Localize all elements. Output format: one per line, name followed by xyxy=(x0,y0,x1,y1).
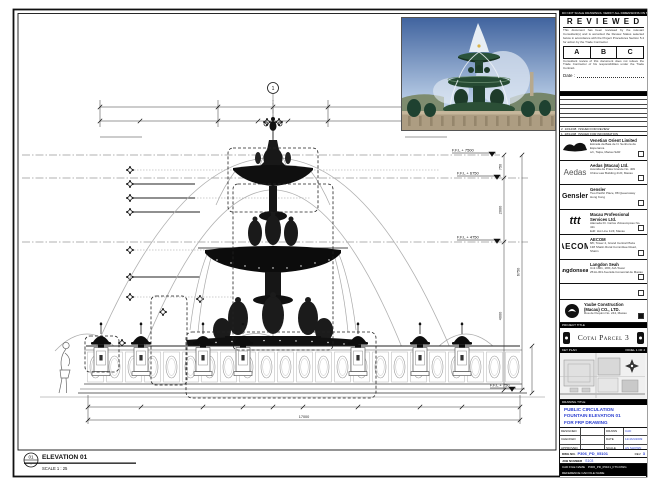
sheet-note: DO NOT SCALE DRAWINGS. VERIFY ALL DIMENS… xyxy=(562,12,647,15)
review-grade-row: A B C xyxy=(563,46,644,59)
consultant-checkbox[interactable] xyxy=(638,290,644,296)
consultant-box-aedas: Aedas Aedas (Macau) Ltd. Avenida da Prai… xyxy=(560,161,647,185)
cad-file-label: CAD FILE NAME xyxy=(562,466,585,469)
title-block-strip: DO NOT SCALE DRAWINGS. VERIFY ALL DIMENS… xyxy=(559,10,646,477)
grid-bubble: 1 xyxy=(268,83,279,94)
aedas-logo: Aedas xyxy=(562,163,588,181)
level-7500: F.F.L + 7500 xyxy=(452,148,475,153)
reference-photo xyxy=(401,17,556,131)
consultant-checkbox[interactable] xyxy=(638,200,644,206)
reviewed-title: R E V I E W E D xyxy=(563,17,644,28)
signature-grid: DESIGNED DRAWN CAD CHECKED - DATE 12/JAN… xyxy=(560,428,647,450)
project-title-label: PROJECT TITLE xyxy=(562,324,585,327)
consultant-address: Edif. Hot Line 11/F, Macau xyxy=(590,230,645,234)
reviewed-stamp: R E V I E W E D This document has been r… xyxy=(560,16,647,92)
key-plan-panel: PANEL 1 OF 4 xyxy=(625,349,645,352)
reference-cad-file-row: REFERENCE CAD FILE NAME xyxy=(560,470,647,476)
job-label: JOB NUMBER xyxy=(562,459,582,463)
consultant-checkbox[interactable] xyxy=(638,250,644,256)
date-field[interactable] xyxy=(577,72,644,78)
date-label2: DATE xyxy=(605,436,624,443)
project-title: Cotai Parcel 3 xyxy=(578,333,630,342)
consultant-box-empty xyxy=(560,284,647,300)
consultant-box-aecom: AECOM AECOM 8/F, Tower 2, Grand Central … xyxy=(560,235,647,260)
date-row: Date : xyxy=(563,72,644,78)
elevation-scale: SCALE 1 : 25 xyxy=(42,466,68,471)
rev-date: 10/12/08 xyxy=(565,127,577,131)
consultant-box-langdonseah: langdonseah Langdon Seah Unit 1801, 18/F… xyxy=(560,260,647,284)
checked-value: - xyxy=(581,436,605,443)
rev-desc: ISSUED FOR REVIEW xyxy=(578,127,609,131)
drawing-title-box: PUBLIC CIRCULATION FOUNTAIN ELEVATION 01… xyxy=(560,405,647,428)
dwg-number: P306_PD_05101 xyxy=(578,451,608,456)
grade-c-cell[interactable]: C xyxy=(617,47,643,58)
key-plan-label: KEY PLAN xyxy=(562,349,577,352)
consultant-checkbox[interactable] xyxy=(638,274,644,280)
dim-4000: 4000 xyxy=(499,312,503,320)
date-value: 12/JAN/2009 xyxy=(624,436,647,443)
consultant-box-venetian: Venetian Orient Limited Estrada da Baia … xyxy=(560,136,647,161)
venetian-lion-logo xyxy=(562,138,588,156)
ttt-logo: ttt xyxy=(562,212,588,230)
dim-750: 750 xyxy=(499,164,503,170)
dim-overall: 17000 xyxy=(299,415,310,419)
checked-label: CHECKED xyxy=(560,436,581,443)
reviewed-paragraph-1: This document has been reviewed by the r… xyxy=(563,29,644,45)
consultant-address: 251A-301 Avenida Comercial de Macau xyxy=(590,271,645,275)
langdonseah-logo: langdonseah xyxy=(562,262,588,280)
revision-table: 2 10/12/08 ISSUED FOR REVIEW 1 28/11/08 … xyxy=(560,96,647,136)
date-label: Date : xyxy=(563,73,575,78)
elevation-label: ELEVATION 01 xyxy=(42,454,88,461)
project-title-box: Cotai Parcel 3 xyxy=(560,328,647,348)
cad-file-value: P306_PD_05101_FTN.DWG xyxy=(588,466,627,469)
consultant-address: China Law Building 21/F, Macau xyxy=(590,172,645,176)
dwg-number-row: DWG NO. P306_PD_05101 REV 3 xyxy=(560,450,647,458)
consultant-checkbox[interactable] xyxy=(638,151,644,157)
consultant-box-mps: ttt Macau Professional Services Ltd. Ala… xyxy=(560,210,647,235)
contractor-box: Yaube Construction (Macau) CO., LTD. Rua… xyxy=(560,300,647,323)
drawing-title-line3: FOR FRP DRAWING xyxy=(564,420,643,426)
drawn-label: DRAWN xyxy=(605,428,624,435)
grade-a-cell[interactable]: A xyxy=(564,47,591,58)
reference-photo-image xyxy=(402,18,555,130)
rev-number: 3 xyxy=(643,451,645,456)
contractor-address: Rua de Pequim No. 244, Macau xyxy=(584,312,645,316)
drawing-sheet: 17000 750 2000 4000 6750 F.F.L + 7500 F.… xyxy=(0,0,650,488)
reference-cad-label: REFERENCE CAD FILE NAME xyxy=(562,472,604,475)
contractor-emblem-logo xyxy=(562,302,582,320)
key-plan-box xyxy=(560,353,647,400)
elevation-bubble-top: 01 xyxy=(28,455,34,460)
level-4750: F.F.L + 4750 xyxy=(457,235,480,240)
drawing-title-label: DRAWING TITLE xyxy=(562,401,585,404)
project-ornament-left xyxy=(562,331,571,345)
consultant-address: Hong Kong xyxy=(590,196,645,200)
consultant-checkbox[interactable] xyxy=(638,225,644,231)
reviewed-paragraph-2: Consultant review of this document does … xyxy=(563,60,644,72)
dim-2000: 2000 xyxy=(499,206,503,214)
aecom-logo: AECOM xyxy=(562,237,588,255)
contractor-checkbox[interactable] xyxy=(638,313,644,319)
grade-b-cell[interactable]: B xyxy=(591,47,618,58)
dwg-label: DWG NO. xyxy=(562,452,576,456)
project-ornament-right xyxy=(636,331,645,345)
rev-no: 2 xyxy=(561,127,563,131)
level-6750: F.F.L + 6750 xyxy=(457,171,480,176)
designed-value xyxy=(581,428,605,435)
consultant-address: 138 Shatin Rural Committee Road, Shatin xyxy=(590,246,645,254)
designed-label: DESIGNED xyxy=(560,428,581,435)
job-number: S103 xyxy=(585,459,593,463)
key-plan-map xyxy=(560,353,645,398)
level-750: F.F.L + 750 xyxy=(490,383,510,388)
rev-label: REV xyxy=(635,452,641,456)
drawn-value: CAD xyxy=(624,428,647,435)
dim-total: 6750 xyxy=(517,268,521,276)
consultant-address: s/n, Taipa, Macau SAR xyxy=(590,151,645,155)
consultant-checkbox[interactable] xyxy=(638,175,644,181)
gensler-logo: Gensler xyxy=(562,187,588,205)
consultant-box-gensler: Gensler Gensler Two Pacific Place, 88 Qu… xyxy=(560,185,647,210)
grid-bubble-label: 1 xyxy=(272,86,275,92)
